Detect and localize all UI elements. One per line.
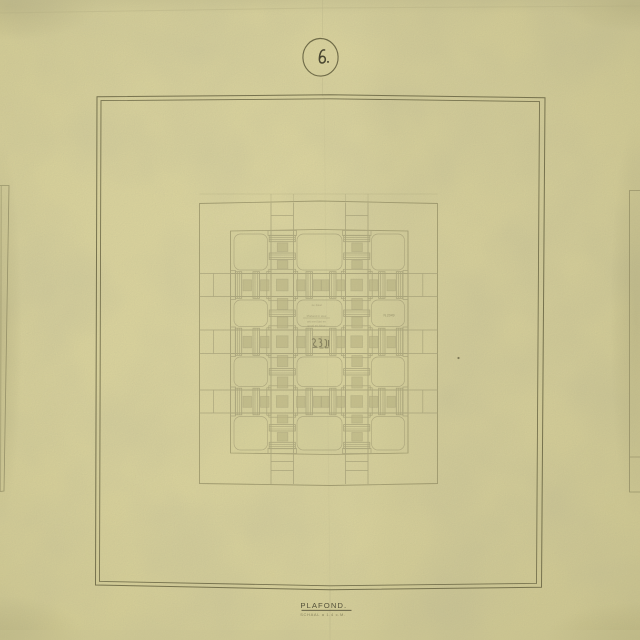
svg-text:goud en kleur: goud en kleur bbox=[307, 324, 325, 328]
svg-text:PLAFOND.: PLAFOND. bbox=[300, 601, 347, 610]
svg-text:1e Zaal: 1e Zaal bbox=[311, 303, 322, 307]
svg-text:Plafond in stuc: Plafond in stuc bbox=[307, 314, 327, 318]
svg-text:SCHAAL a 1.4 c.M.: SCHAAL a 1.4 c.M. bbox=[300, 612, 346, 617]
svg-text:N.2049: N.2049 bbox=[384, 314, 395, 318]
